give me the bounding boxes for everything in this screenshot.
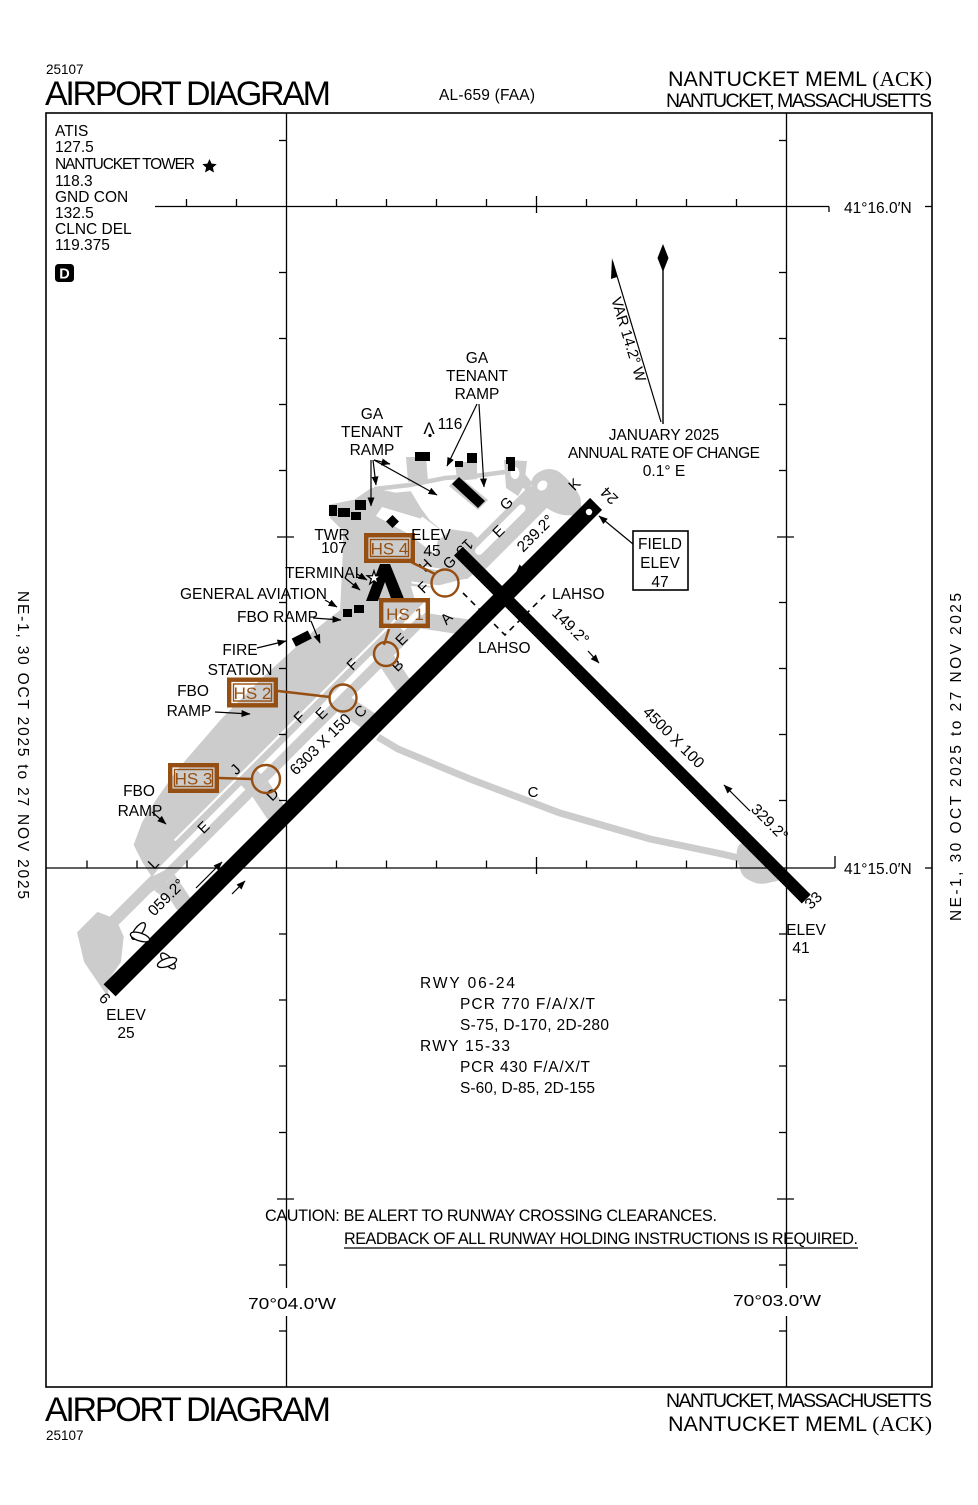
svg-text:FIELD: FIELD xyxy=(638,536,682,553)
svg-text:C: C xyxy=(528,784,539,801)
svg-text:ELEV: ELEV xyxy=(411,527,451,544)
svg-text:S-75, D-170, 2D-280: S-75, D-170, 2D-280 xyxy=(460,1017,609,1034)
svg-text:25107: 25107 xyxy=(46,1428,84,1443)
svg-text:NANTUCKET, MASSACHUSETTS: NANTUCKET, MASSACHUSETTS xyxy=(666,1390,932,1412)
svg-text:AIRPORT DIAGRAM: AIRPORT DIAGRAM xyxy=(45,1391,331,1429)
svg-text:RWY 06-24: RWY 06-24 xyxy=(420,975,515,992)
svg-text:132.5: 132.5 xyxy=(55,205,94,222)
svg-text:LAHSO: LAHSO xyxy=(552,586,605,603)
svg-text:S-60, D-85, 2D-155: S-60, D-85, 2D-155 xyxy=(460,1080,595,1097)
svg-text:107: 107 xyxy=(321,540,347,557)
svg-text:127.5: 127.5 xyxy=(55,139,94,156)
svg-text:0.1° E: 0.1° E xyxy=(643,463,685,480)
svg-text:25: 25 xyxy=(117,1025,134,1042)
svg-text:LAHSO: LAHSO xyxy=(478,640,531,657)
svg-text:ANNUAL RATE OF CHANGE: ANNUAL RATE OF CHANGE xyxy=(568,445,760,462)
svg-text:41: 41 xyxy=(792,940,809,957)
svg-text:RAMP: RAMP xyxy=(118,803,163,820)
svg-text:GENERAL AVIATION: GENERAL AVIATION xyxy=(180,586,327,603)
svg-text:ELEV: ELEV xyxy=(106,1007,146,1024)
svg-text:TENANT: TENANT xyxy=(341,424,404,441)
svg-text:NE-1, 30 OCT 2025 to 27 NOV: NE-1, 30 OCT 2025 to 27 NOV 2025 xyxy=(948,593,965,921)
svg-text:HS 2: HS 2 xyxy=(234,684,272,703)
svg-text:PCR 770 F/A/X/T: PCR 770 F/A/X/T xyxy=(460,996,596,1013)
svg-text:FBO: FBO xyxy=(123,783,155,800)
svg-text:70°03.0′W: 70°03.0′W xyxy=(733,1293,821,1310)
svg-text:GA: GA xyxy=(466,350,489,367)
svg-text:CAUTION: BE ALERT TO RUNWAY CR: CAUTION: BE ALERT TO RUNWAY CROSSING CLE… xyxy=(265,1207,717,1225)
svg-text:STATION: STATION xyxy=(208,662,273,679)
svg-text:41°15.0′N: 41°15.0′N xyxy=(844,861,912,878)
svg-text:CLNC DEL: CLNC DEL xyxy=(55,221,132,238)
svg-text:RAMP: RAMP xyxy=(350,442,395,459)
svg-text:70°04.0′W: 70°04.0′W xyxy=(248,1296,336,1313)
svg-text:45: 45 xyxy=(423,543,440,560)
svg-text:RAMP: RAMP xyxy=(167,703,212,720)
svg-text:NE-1, 30 OCT 2025 to 27 NOV: NE-1, 30 OCT 2025 to 27 NOV 2025 xyxy=(14,591,31,899)
svg-text:GA: GA xyxy=(361,406,384,423)
svg-text:NANTUCKET TOWER: NANTUCKET TOWER xyxy=(55,156,195,173)
svg-text:TENANT: TENANT xyxy=(446,368,509,385)
svg-text:ELEV: ELEV xyxy=(786,922,826,939)
svg-text:119.375: 119.375 xyxy=(55,237,110,254)
svg-text:NANTUCKET MEML (ACK): NANTUCKET MEML (ACK) xyxy=(668,67,932,91)
svg-text:ATIS: ATIS xyxy=(55,123,88,140)
svg-text:RAMP: RAMP xyxy=(455,386,500,403)
svg-text:47: 47 xyxy=(651,574,668,591)
svg-text:41°16.0′N: 41°16.0′N xyxy=(844,200,912,217)
svg-text:JANUARY 2025: JANUARY 2025 xyxy=(609,427,720,444)
svg-text:NANTUCKET, MASSACHUSETTS: NANTUCKET, MASSACHUSETTS xyxy=(666,90,932,112)
svg-text:FBO RAMP: FBO RAMP xyxy=(237,609,318,626)
svg-text:GND CON: GND CON xyxy=(55,189,128,206)
svg-text:HS 1: HS 1 xyxy=(386,605,424,624)
svg-text:NANTUCKET MEML (ACK): NANTUCKET MEML (ACK) xyxy=(668,1412,932,1436)
svg-text:AL-659 (FAA): AL-659 (FAA) xyxy=(439,87,535,104)
svg-text:AIRPORT DIAGRAM: AIRPORT DIAGRAM xyxy=(45,75,331,113)
svg-text:PCR 430 F/A/X/T: PCR 430 F/A/X/T xyxy=(460,1059,591,1076)
svg-text:TERMINAL: TERMINAL xyxy=(285,565,364,582)
svg-text:116: 116 xyxy=(438,416,463,433)
svg-text:HS 3: HS 3 xyxy=(175,770,213,789)
svg-text:FIRE: FIRE xyxy=(222,642,257,659)
svg-text:D: D xyxy=(59,267,69,283)
svg-text:118.3: 118.3 xyxy=(55,173,93,190)
svg-text:ELEV: ELEV xyxy=(640,555,680,572)
svg-text:READBACK OF ALL RUNWAY HOLDING: READBACK OF ALL RUNWAY HOLDING INSTRUCTI… xyxy=(344,1230,858,1248)
svg-text:HS 4: HS 4 xyxy=(371,540,409,559)
svg-text:RWY 15-33: RWY 15-33 xyxy=(420,1038,510,1055)
svg-text:FBO: FBO xyxy=(177,683,209,700)
